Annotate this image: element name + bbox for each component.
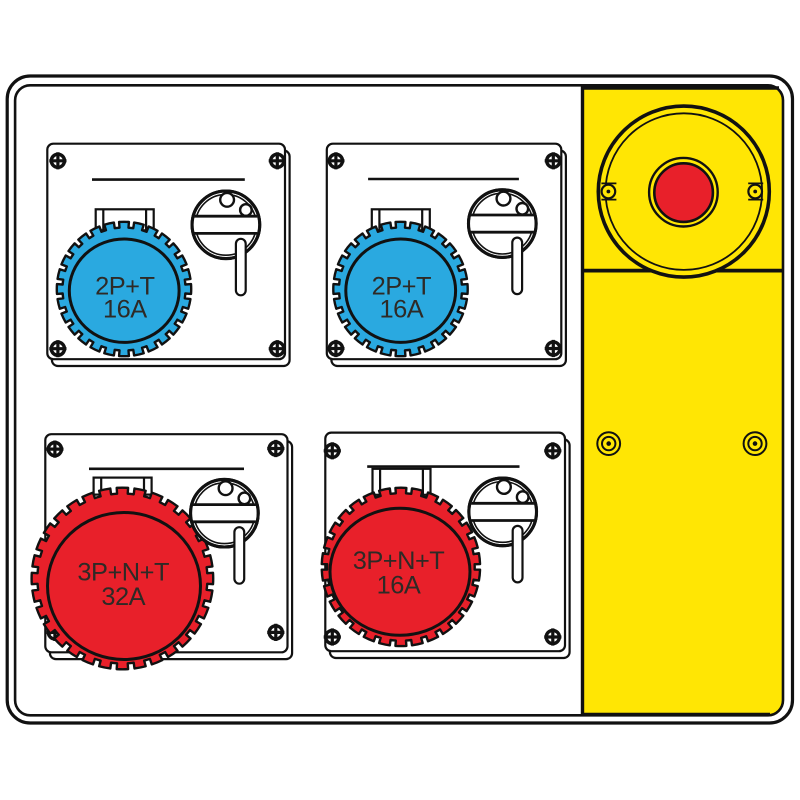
svg-text:16A: 16A [377, 571, 421, 599]
svg-text:16A: 16A [379, 296, 423, 324]
svg-text:16A: 16A [103, 296, 147, 324]
svg-text:32A: 32A [101, 583, 145, 611]
